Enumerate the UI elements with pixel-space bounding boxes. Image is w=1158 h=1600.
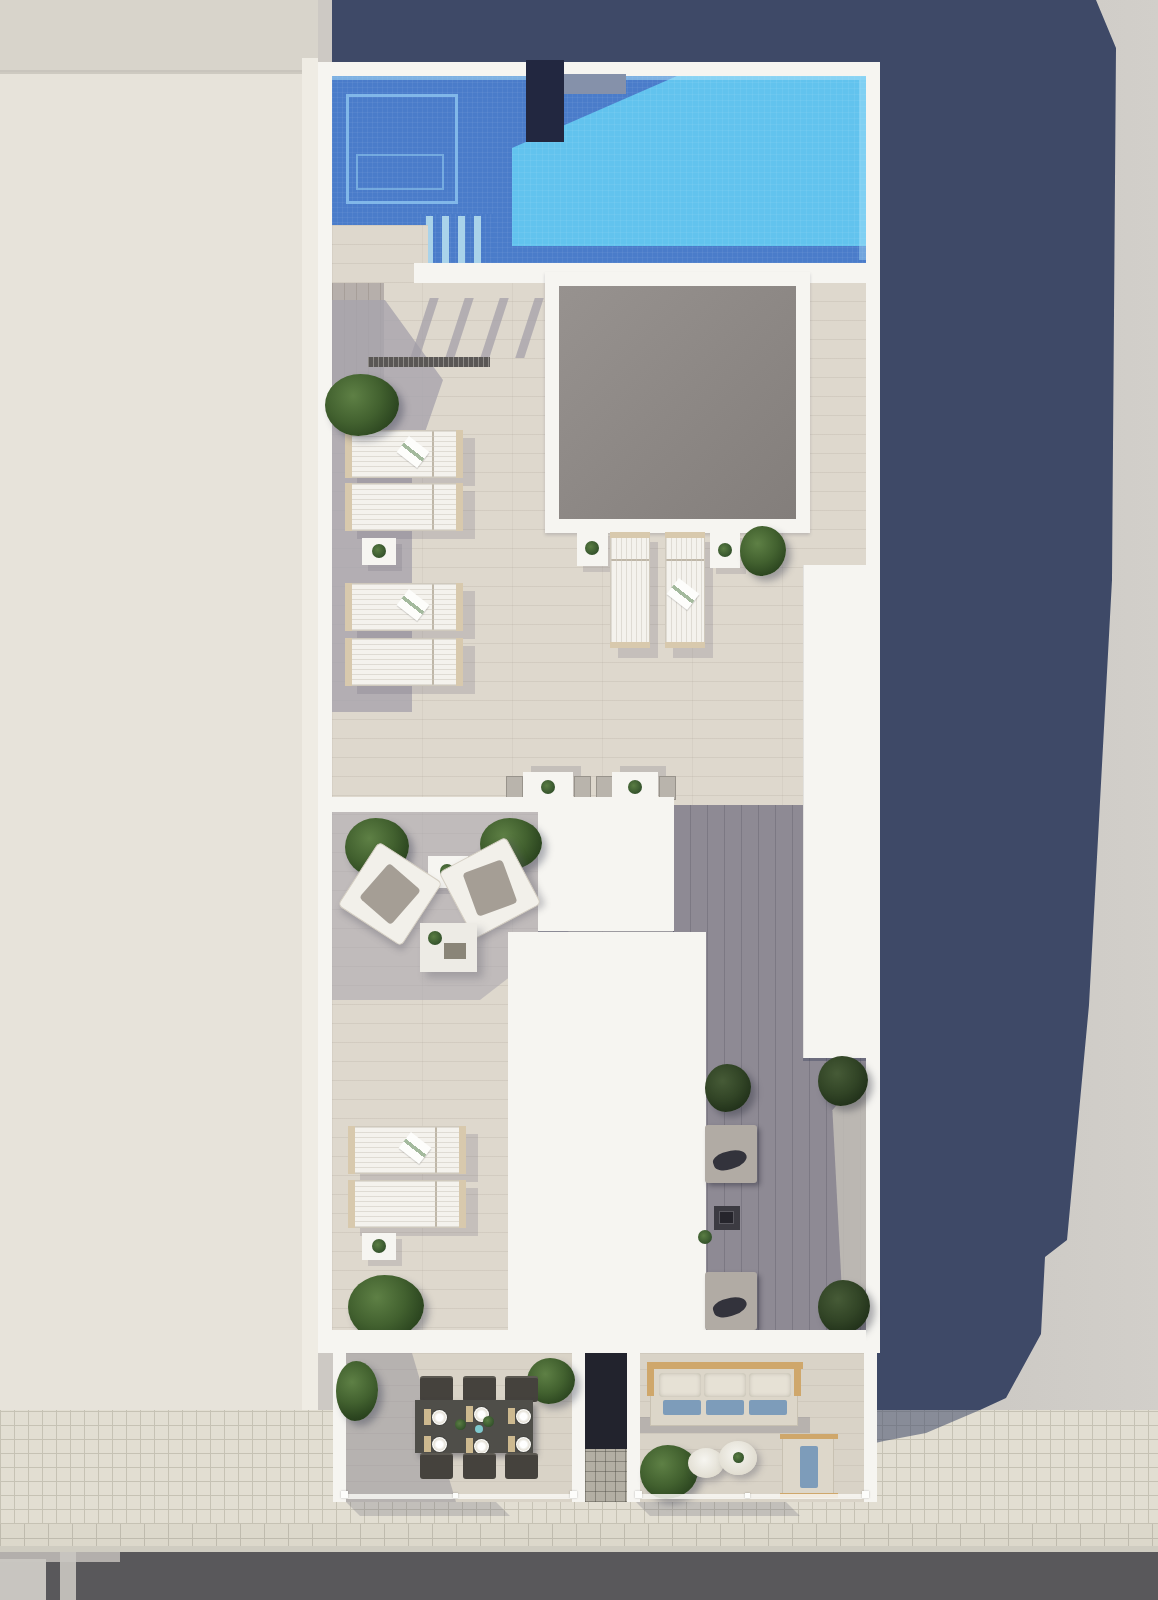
pool-platform-ledge [356, 154, 444, 190]
seat-cushion [663, 1400, 701, 1415]
balcony-sofa [627, 1353, 877, 1502]
placemat [424, 1409, 431, 1425]
back-cushion [704, 1373, 746, 1397]
outdoor-sofa [705, 1125, 757, 1183]
pool-step [458, 216, 465, 263]
seat-cushion [462, 859, 517, 917]
table-plant [455, 1419, 466, 1430]
pillow [711, 1293, 749, 1321]
glass-railing [637, 1494, 867, 1499]
potted-plant [698, 1230, 712, 1244]
balcony-dining [333, 1353, 585, 1502]
sun-lounger [345, 638, 463, 686]
curb [0, 1546, 1158, 1552]
table-plant [483, 1416, 494, 1427]
west-parapet-wall [318, 62, 332, 1353]
railing-post [862, 1491, 869, 1498]
seat-cushion [706, 1400, 744, 1415]
placemat [466, 1438, 473, 1454]
sun-lounger [348, 1180, 466, 1228]
back-cushion [659, 1373, 701, 1397]
armchair [782, 1437, 834, 1495]
railing-post [453, 1493, 458, 1498]
outdoor-sofa [705, 1272, 757, 1330]
skylight-glass [559, 286, 796, 519]
railing-post [635, 1491, 642, 1498]
round-table [719, 1441, 757, 1475]
railing-post [745, 1493, 750, 1498]
fire-pit [719, 1211, 734, 1224]
dining-chair [505, 1453, 538, 1479]
road [0, 1552, 1158, 1600]
seat-cushion [359, 863, 421, 925]
placemat [424, 1436, 431, 1452]
potted-plant [585, 541, 599, 555]
outdoor-sofa [650, 1366, 798, 1426]
sofa-arm [647, 1362, 654, 1396]
railing-post [570, 1491, 577, 1498]
railing-post [341, 1491, 348, 1498]
pillow [711, 1146, 749, 1174]
service-wall [803, 565, 866, 1058]
back-cushion [749, 1373, 791, 1397]
pool-step [474, 216, 481, 263]
east-parapet-wall [866, 62, 880, 1353]
potted-plant [372, 1239, 386, 1253]
placemat [508, 1408, 515, 1424]
dining-chair [505, 1376, 538, 1402]
south-wall [332, 1330, 866, 1353]
road-marking [0, 1559, 46, 1600]
potted-plant [372, 544, 386, 558]
armchair-wood-frame [780, 1434, 838, 1439]
balcony-side-wall [627, 1353, 640, 1502]
swimming-pool [332, 76, 866, 263]
stair-gap [585, 1353, 627, 1449]
side-table [577, 530, 608, 566]
potted-plant [718, 543, 732, 557]
coffee-table [420, 923, 477, 972]
dividing-wall [332, 797, 542, 812]
road-marking [0, 1552, 120, 1562]
balcony-side-wall [864, 1353, 877, 1502]
plate [516, 1437, 531, 1452]
balcony-shadow-right [634, 1500, 800, 1516]
sun-lounger [610, 532, 650, 648]
dining-chair [463, 1453, 496, 1479]
pool-water-highlight [859, 80, 866, 260]
side-table [362, 1233, 396, 1260]
roof-slab-large [508, 932, 706, 1353]
pitcher [475, 1425, 483, 1433]
adjacent-roof-parapet [302, 58, 318, 1410]
dining-chair [463, 1376, 496, 1402]
tray [444, 943, 466, 959]
plate [516, 1409, 531, 1424]
sofa-wood-frame [647, 1362, 803, 1369]
chimney-block [526, 60, 564, 142]
potted-plant [628, 780, 642, 794]
skylight-frame [545, 272, 810, 533]
side-table [362, 538, 396, 565]
sofa-arm [794, 1362, 801, 1396]
side-table [710, 532, 740, 568]
fire-pit-table [714, 1206, 740, 1230]
dining-chair [420, 1453, 453, 1479]
potted-plant [541, 780, 555, 794]
seat-cushion [800, 1446, 818, 1488]
seat-cushion [749, 1400, 787, 1415]
aerial-render [0, 0, 1158, 1600]
potted-plant [733, 1452, 744, 1463]
dining-chair [420, 1376, 453, 1402]
potted-plant [428, 931, 442, 945]
round-table [688, 1448, 724, 1478]
adjacent-roof-edge [0, 70, 318, 74]
stair-gap-tiles [585, 1449, 627, 1502]
adjacent-roof [0, 0, 318, 1410]
chimney-ledge [564, 74, 626, 94]
adjacent-roof-upper-band [0, 0, 318, 72]
plate [432, 1437, 447, 1452]
balcony-shadow-left [344, 1500, 510, 1516]
placemat [508, 1436, 515, 1452]
placemat [466, 1406, 473, 1422]
drain-grate [368, 357, 490, 367]
main-building [318, 62, 880, 1502]
pool-step [442, 216, 449, 263]
plate [432, 1410, 447, 1425]
glass-railing [343, 1494, 575, 1499]
sun-lounger [345, 483, 463, 531]
plate [474, 1439, 489, 1454]
roof-slab-small [538, 797, 674, 931]
pool-deck-notch [332, 225, 428, 263]
